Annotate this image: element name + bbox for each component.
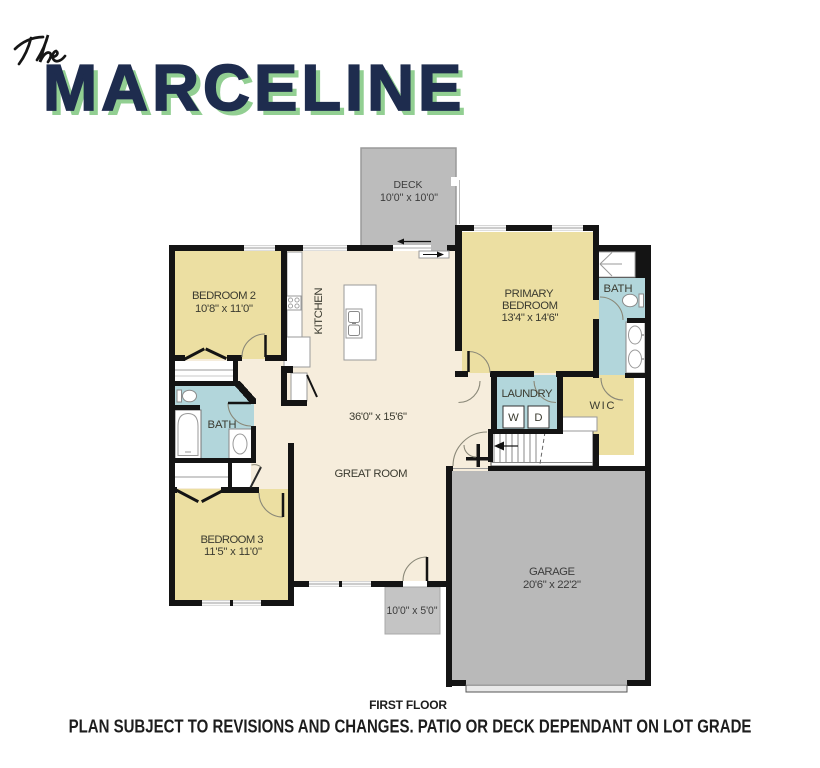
svg-text:20'6" x 22'2": 20'6" x 22'2" — [523, 579, 581, 591]
svg-text:WIC: WIC — [590, 400, 615, 412]
svg-text:36'0" x 15'6": 36'0" x 15'6" — [349, 411, 407, 423]
svg-text:10'8" x 11'0": 10'8" x 11'0" — [195, 303, 253, 315]
svg-text:BEDROOM 3: BEDROOM 3 — [201, 534, 264, 546]
svg-text:BEDROOM: BEDROOM — [502, 300, 558, 312]
svg-text:BATH: BATH — [208, 419, 237, 431]
svg-text:LAUNDRY: LAUNDRY — [502, 388, 553, 400]
svg-text:10'0" x 10'0": 10'0" x 10'0" — [380, 192, 438, 204]
svg-text:BATH: BATH — [604, 283, 633, 295]
svg-text:GARAGE: GARAGE — [529, 566, 575, 578]
svg-text:13'4" x 14'6": 13'4" x 14'6" — [502, 312, 559, 324]
svg-text:BEDROOM 2: BEDROOM 2 — [192, 290, 256, 302]
svg-text:10'0" x 5'0": 10'0" x 5'0" — [387, 605, 438, 617]
svg-text:11'5" x 11'0": 11'5" x 11'0" — [204, 546, 262, 558]
svg-text:D: D — [534, 412, 542, 424]
svg-text:GREAT ROOM: GREAT ROOM — [335, 468, 408, 480]
svg-text:DECK: DECK — [394, 179, 423, 191]
svg-text:W: W — [508, 412, 519, 424]
svg-text:KITCHEN: KITCHEN — [313, 288, 325, 335]
svg-text:PRIMARY: PRIMARY — [505, 288, 554, 300]
